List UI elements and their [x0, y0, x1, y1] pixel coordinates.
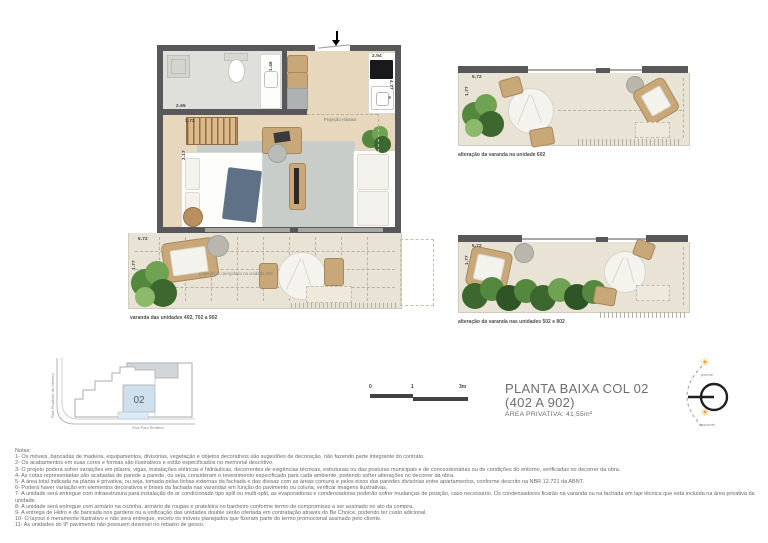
- toilet: [228, 59, 245, 83]
- dim-kitchen-depth: 4.77: [389, 80, 394, 90]
- dim-balcony502-width: 5,72: [472, 243, 482, 248]
- dim-bathroom-width: 2.65: [176, 103, 186, 108]
- street-label-bottom: Rua Paul Redfern: [118, 425, 178, 430]
- closet-lower: [287, 88, 308, 111]
- floor-marking: [306, 286, 352, 303]
- scale-tick-0: 0: [369, 384, 372, 390]
- private-area: ÁREA PRIVATIVA: 41,55m²: [505, 411, 592, 418]
- scale-tick-3m: 3m: [459, 384, 466, 390]
- key-plan-drawing: 02: [45, 356, 195, 430]
- scale-bar-segment: [370, 394, 413, 398]
- compass-poente-label: poente: [692, 372, 722, 377]
- lower-balcony: projeção do pergolado na unidade 902: [128, 233, 402, 309]
- scale-bar-segment: [413, 397, 468, 401]
- plan-subtitle: (402 A 902): [505, 395, 575, 410]
- dining-chair: [593, 285, 618, 307]
- compass-nascente-label: nascente: [688, 422, 726, 427]
- private-area-value: 41,55m²: [566, 411, 592, 418]
- laptop: [273, 131, 290, 143]
- dim-room-depth: 3.17: [181, 150, 186, 160]
- sliding-door-glass: [298, 228, 383, 232]
- side-table: [514, 243, 534, 263]
- ceiling-projection-line: [302, 114, 378, 115]
- dim-lower-balcony-depth: 1.77: [131, 260, 136, 270]
- wall-bathroom-divider: [282, 51, 287, 109]
- scale-bar: 0 1 3m: [365, 384, 475, 404]
- sofa-cushion: [357, 154, 389, 190]
- bathroom-sink: [264, 71, 278, 88]
- note-item: 11- As unidades do 9º pavimento não poss…: [15, 522, 763, 528]
- sun-icon: ☀: [700, 358, 710, 369]
- private-area-label: ÁREA PRIVATIVA:: [505, 411, 564, 418]
- plant: [460, 92, 508, 140]
- balcony-602: [458, 66, 688, 154]
- ceiling-projection-label: Projeção rebaixo: [305, 117, 375, 122]
- scale-tick-1: 1: [411, 384, 414, 390]
- shower: [167, 55, 190, 78]
- unit-number: 02: [133, 395, 145, 406]
- desk-chair: [268, 144, 287, 163]
- dim-balcony502-depth: 1,77: [464, 255, 469, 265]
- floor-plan-sheet: Projeção rebaixo 2.65 1.73 3.17 1.46 2.9…: [0, 0, 768, 543]
- hatch-strip: [578, 139, 680, 145]
- sun-icon: ☀: [700, 408, 710, 419]
- entry-arrow-icon: [332, 31, 341, 47]
- sliding-door-glass: [205, 228, 290, 232]
- dim-stairs-width: 1.73: [185, 118, 195, 123]
- side-table: [207, 235, 229, 257]
- wall-bathroom-bottom: [163, 109, 307, 115]
- north-indicator-icon: [670, 352, 750, 444]
- dim-lower-balcony-width: 5.72: [138, 236, 148, 241]
- bedside-table: [183, 207, 203, 227]
- dim-balcony602-depth: 1,77: [464, 86, 469, 96]
- wall-top-right: [350, 45, 401, 51]
- street-label-left: Rua Prudente de Moraes: [50, 373, 55, 418]
- tv: [294, 168, 299, 204]
- floor-marking: [636, 285, 670, 301]
- dining-chair: [259, 263, 278, 289]
- bed-blanket: [222, 167, 262, 223]
- sink-bowl: [376, 92, 389, 106]
- pillow: [185, 158, 200, 190]
- floor-marking: [635, 122, 670, 138]
- balcony-602-caption: alteração da varanda na unidade 602: [458, 152, 545, 158]
- note-item: 7- A unidade será entregue com infraestr…: [15, 491, 763, 503]
- hatch-strip: [291, 303, 397, 308]
- ceiling-projection-line: [378, 114, 379, 152]
- tv-console: [289, 163, 306, 210]
- pergola-label: projeção do pergolado na unidade 902: [177, 271, 295, 276]
- wall-left: [157, 45, 163, 233]
- wall-top-left: [157, 45, 315, 51]
- balcony-502-802-caption: alteração da varanda nas unidades 502 e …: [458, 319, 565, 325]
- sofa-cushion: [357, 191, 389, 226]
- cooktop: [370, 60, 393, 79]
- wall-right: [395, 45, 401, 233]
- lower-balcony-caption: varanda das unidades 402, 702 a 902: [130, 315, 217, 321]
- plant: [129, 259, 181, 307]
- plan-title: PLANTA BAIXA COL 02: [505, 381, 649, 396]
- faucet: [388, 96, 391, 99]
- dim-hall-width: 1.46: [268, 61, 273, 71]
- key-plan: 02: [45, 356, 195, 430]
- dim-kitchen-width: 2.94: [372, 53, 382, 58]
- sofa: [353, 150, 400, 230]
- balcony-502-802: [458, 235, 688, 318]
- plant: [360, 124, 394, 154]
- shower-tray: [171, 59, 186, 74]
- hatch-strip: [600, 312, 686, 318]
- notes-block: Notas: 1- Os móveis, bancadas de madeira…: [15, 448, 763, 529]
- side-ledge: [400, 239, 434, 306]
- compass: ☀ ☀ poente nascente: [670, 352, 750, 444]
- dining-chair: [324, 258, 344, 286]
- hedge: [462, 277, 612, 311]
- dim-balcony602-width: 5,72: [472, 74, 482, 79]
